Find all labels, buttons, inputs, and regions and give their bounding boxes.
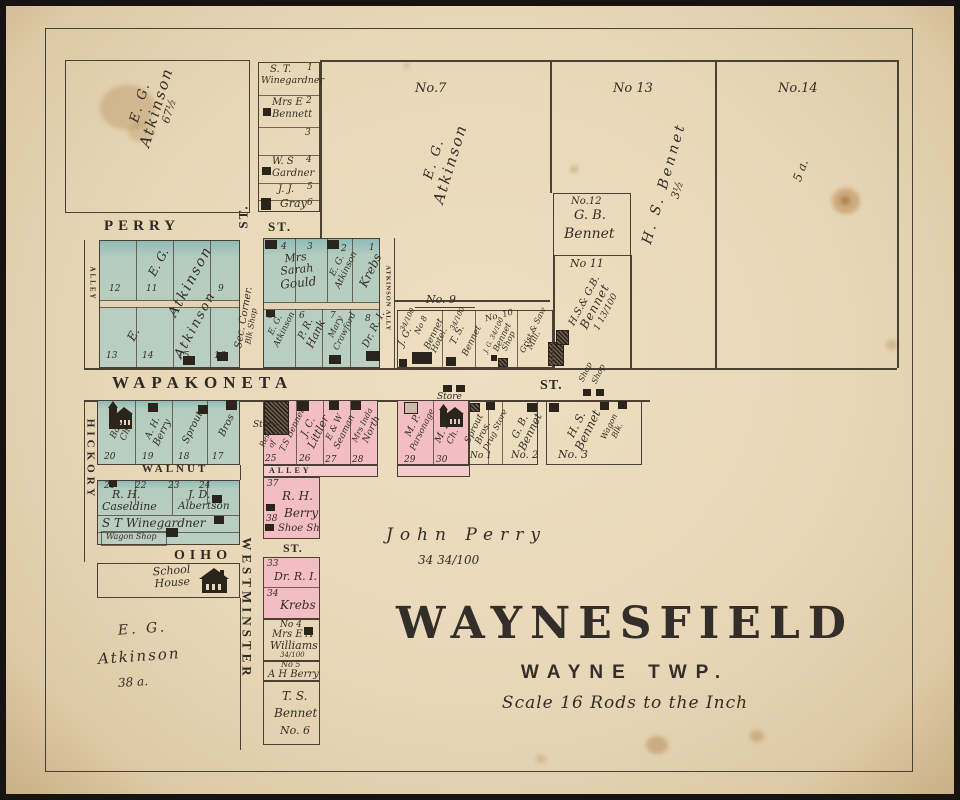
boundary-line bbox=[320, 60, 322, 238]
building bbox=[265, 240, 277, 249]
lot-owner: Bennett bbox=[272, 109, 312, 120]
street-label-walnut: WALNUT bbox=[142, 464, 208, 475]
lot-number: 34 bbox=[267, 589, 278, 599]
lot-number: 26 bbox=[299, 454, 310, 464]
street-label-wapakoneta: WAPAKONETA bbox=[112, 374, 293, 391]
street-label-perry-st: ST. bbox=[268, 220, 292, 233]
map-scale: Scale 16 Rods to the Inch bbox=[390, 694, 860, 713]
owner-line: G. B. bbox=[574, 209, 606, 224]
street-label-westminster-st-top: ST. bbox=[237, 195, 250, 239]
owner-line: A H Berry bbox=[268, 669, 319, 680]
lot-owner: Gray bbox=[280, 198, 307, 210]
lot-owner: S. T. bbox=[270, 64, 291, 75]
owner-line: Krebs bbox=[280, 599, 316, 612]
lot-num: No. 2 bbox=[511, 450, 538, 461]
street-label-hickory: HICKORY bbox=[85, 395, 96, 525]
lot-divider bbox=[135, 400, 136, 465]
building bbox=[618, 401, 627, 409]
lot-number: 29 bbox=[404, 455, 415, 465]
building bbox=[486, 402, 495, 410]
boundary-line bbox=[320, 60, 897, 62]
lot-number: 4 bbox=[306, 155, 312, 165]
lot-number: 27 bbox=[325, 455, 336, 465]
building bbox=[583, 389, 591, 396]
street-label-wapakoneta-st: ST. bbox=[540, 379, 563, 393]
lot-number: 5 bbox=[307, 182, 313, 192]
building bbox=[443, 385, 452, 392]
lot-number: 13 bbox=[106, 351, 117, 361]
building bbox=[183, 356, 195, 365]
stain bbox=[536, 755, 546, 763]
building bbox=[446, 357, 456, 366]
owner-winegardner: S T Winegardner bbox=[102, 517, 205, 530]
lot-owner: Winegardner bbox=[261, 76, 324, 87]
lot-number: 25 bbox=[265, 454, 276, 464]
john-perry-label: John Perry bbox=[386, 526, 547, 545]
wapakoneta-north-line bbox=[84, 368, 897, 370]
lot-number: 37 bbox=[267, 479, 278, 489]
lot-number: 4 bbox=[281, 242, 287, 252]
building bbox=[262, 167, 271, 175]
map-paper: S. T. 1 Winegardner Mrs E 2 Bennett 3 W.… bbox=[6, 6, 954, 794]
john-perry-acreage: 34 34/100 bbox=[418, 554, 479, 567]
street-label-atkinson-ally: ATKINSON ALLY bbox=[384, 243, 391, 353]
building bbox=[498, 358, 508, 367]
stain bbox=[570, 166, 578, 173]
lot-number: 14 bbox=[142, 351, 153, 361]
lot-divider bbox=[517, 310, 518, 368]
lot-num: No. 6 bbox=[280, 725, 310, 737]
map-subtitle: WAYNE TWP. bbox=[390, 662, 860, 684]
building bbox=[327, 240, 339, 249]
building bbox=[304, 627, 313, 635]
building bbox=[212, 495, 222, 503]
lot-number: 3 bbox=[305, 128, 311, 138]
boundary-line bbox=[715, 60, 717, 368]
owner-line: Bennet bbox=[274, 707, 317, 720]
building bbox=[399, 359, 407, 367]
stain bbox=[404, 63, 409, 68]
lot-divider bbox=[172, 400, 173, 465]
building bbox=[456, 385, 465, 392]
lot-number: 9 bbox=[218, 284, 224, 294]
building bbox=[556, 330, 569, 345]
building bbox=[263, 108, 271, 116]
lot-number: 20 bbox=[104, 452, 115, 462]
westminster-line bbox=[240, 465, 241, 480]
lot-number: 33 bbox=[267, 559, 278, 569]
map-title: WAYNESFIELD bbox=[390, 602, 860, 646]
lot-number: 6 bbox=[307, 198, 313, 208]
lot-number: 12 bbox=[109, 284, 120, 294]
lot-owner: Gardner bbox=[272, 168, 314, 179]
stain bbox=[646, 736, 668, 754]
owner-line: Caseldine bbox=[102, 501, 157, 513]
lot-owner: W. S bbox=[272, 156, 294, 167]
lot-number: 17 bbox=[212, 452, 223, 462]
lot-divider bbox=[263, 587, 320, 588]
atkinson-ally-east-line bbox=[394, 238, 395, 368]
lot-number: 30 bbox=[436, 455, 447, 465]
outlot-label: No.12 bbox=[571, 196, 602, 207]
boundary-line bbox=[897, 60, 899, 368]
lot-owner: Mrs E bbox=[272, 97, 303, 108]
building bbox=[297, 401, 309, 411]
owner-acreage: 38 a. bbox=[118, 675, 149, 691]
building bbox=[549, 403, 559, 412]
owner-line: Dr. R. I. bbox=[274, 571, 317, 583]
school-label: School House bbox=[143, 563, 201, 591]
lot-divider bbox=[210, 307, 211, 368]
street-label-ohio: OHIO bbox=[158, 546, 238, 560]
building bbox=[266, 504, 275, 511]
building bbox=[265, 524, 274, 531]
outlot-label: No.7 bbox=[415, 82, 446, 97]
stain bbox=[750, 730, 764, 742]
lot-number: 19 bbox=[142, 452, 153, 462]
lot-frac: 34/100 bbox=[280, 652, 305, 660]
owner-line: T. S. bbox=[282, 690, 307, 703]
street-label-alley-south: ALLEY bbox=[269, 467, 312, 475]
lot-owner: J. J. bbox=[278, 184, 294, 195]
building bbox=[109, 480, 117, 487]
owner-gould: Mrs Sarah Gould bbox=[264, 249, 330, 293]
alley-west-line bbox=[84, 240, 85, 368]
street-label-ohio-st: ST. bbox=[283, 542, 303, 554]
lot-number: 28 bbox=[352, 455, 363, 465]
lot-number: 2 bbox=[306, 96, 312, 106]
owner-line: Bennet bbox=[564, 227, 615, 243]
building bbox=[261, 198, 271, 210]
owner-line: R. H. bbox=[282, 490, 313, 503]
building bbox=[217, 352, 228, 361]
building bbox=[412, 352, 432, 364]
house-icon bbox=[198, 566, 230, 594]
building bbox=[491, 355, 497, 361]
boundary-line bbox=[395, 300, 550, 302]
lot-number: 11 bbox=[146, 284, 157, 294]
building bbox=[596, 389, 604, 396]
lot-number: 18 bbox=[178, 452, 189, 462]
street-label-alley-west: ALLEY bbox=[89, 254, 96, 314]
street-label-westminster: WESTMINSTER bbox=[241, 514, 254, 704]
lot-num: No. 3 bbox=[558, 449, 588, 461]
lot-number: 1 bbox=[307, 63, 313, 73]
lot-number: 38 bbox=[266, 514, 277, 524]
boundary-line bbox=[550, 60, 552, 193]
wagon-shop-label: Wagon Shop bbox=[106, 533, 157, 542]
alley-strip bbox=[397, 465, 470, 477]
building bbox=[166, 528, 178, 537]
building bbox=[329, 401, 339, 410]
building bbox=[214, 516, 224, 524]
outlot-label: No.14 bbox=[778, 82, 818, 97]
outlot-label: No 13 bbox=[613, 82, 653, 97]
building bbox=[329, 355, 341, 364]
shoe-shop-label: Shoe Sh bbox=[278, 523, 320, 534]
building bbox=[351, 401, 361, 410]
no9-label: No. 9 bbox=[426, 294, 456, 306]
owner-line: Berry bbox=[284, 507, 318, 520]
lot-number: 23 bbox=[168, 481, 179, 491]
stain bbox=[840, 196, 850, 205]
